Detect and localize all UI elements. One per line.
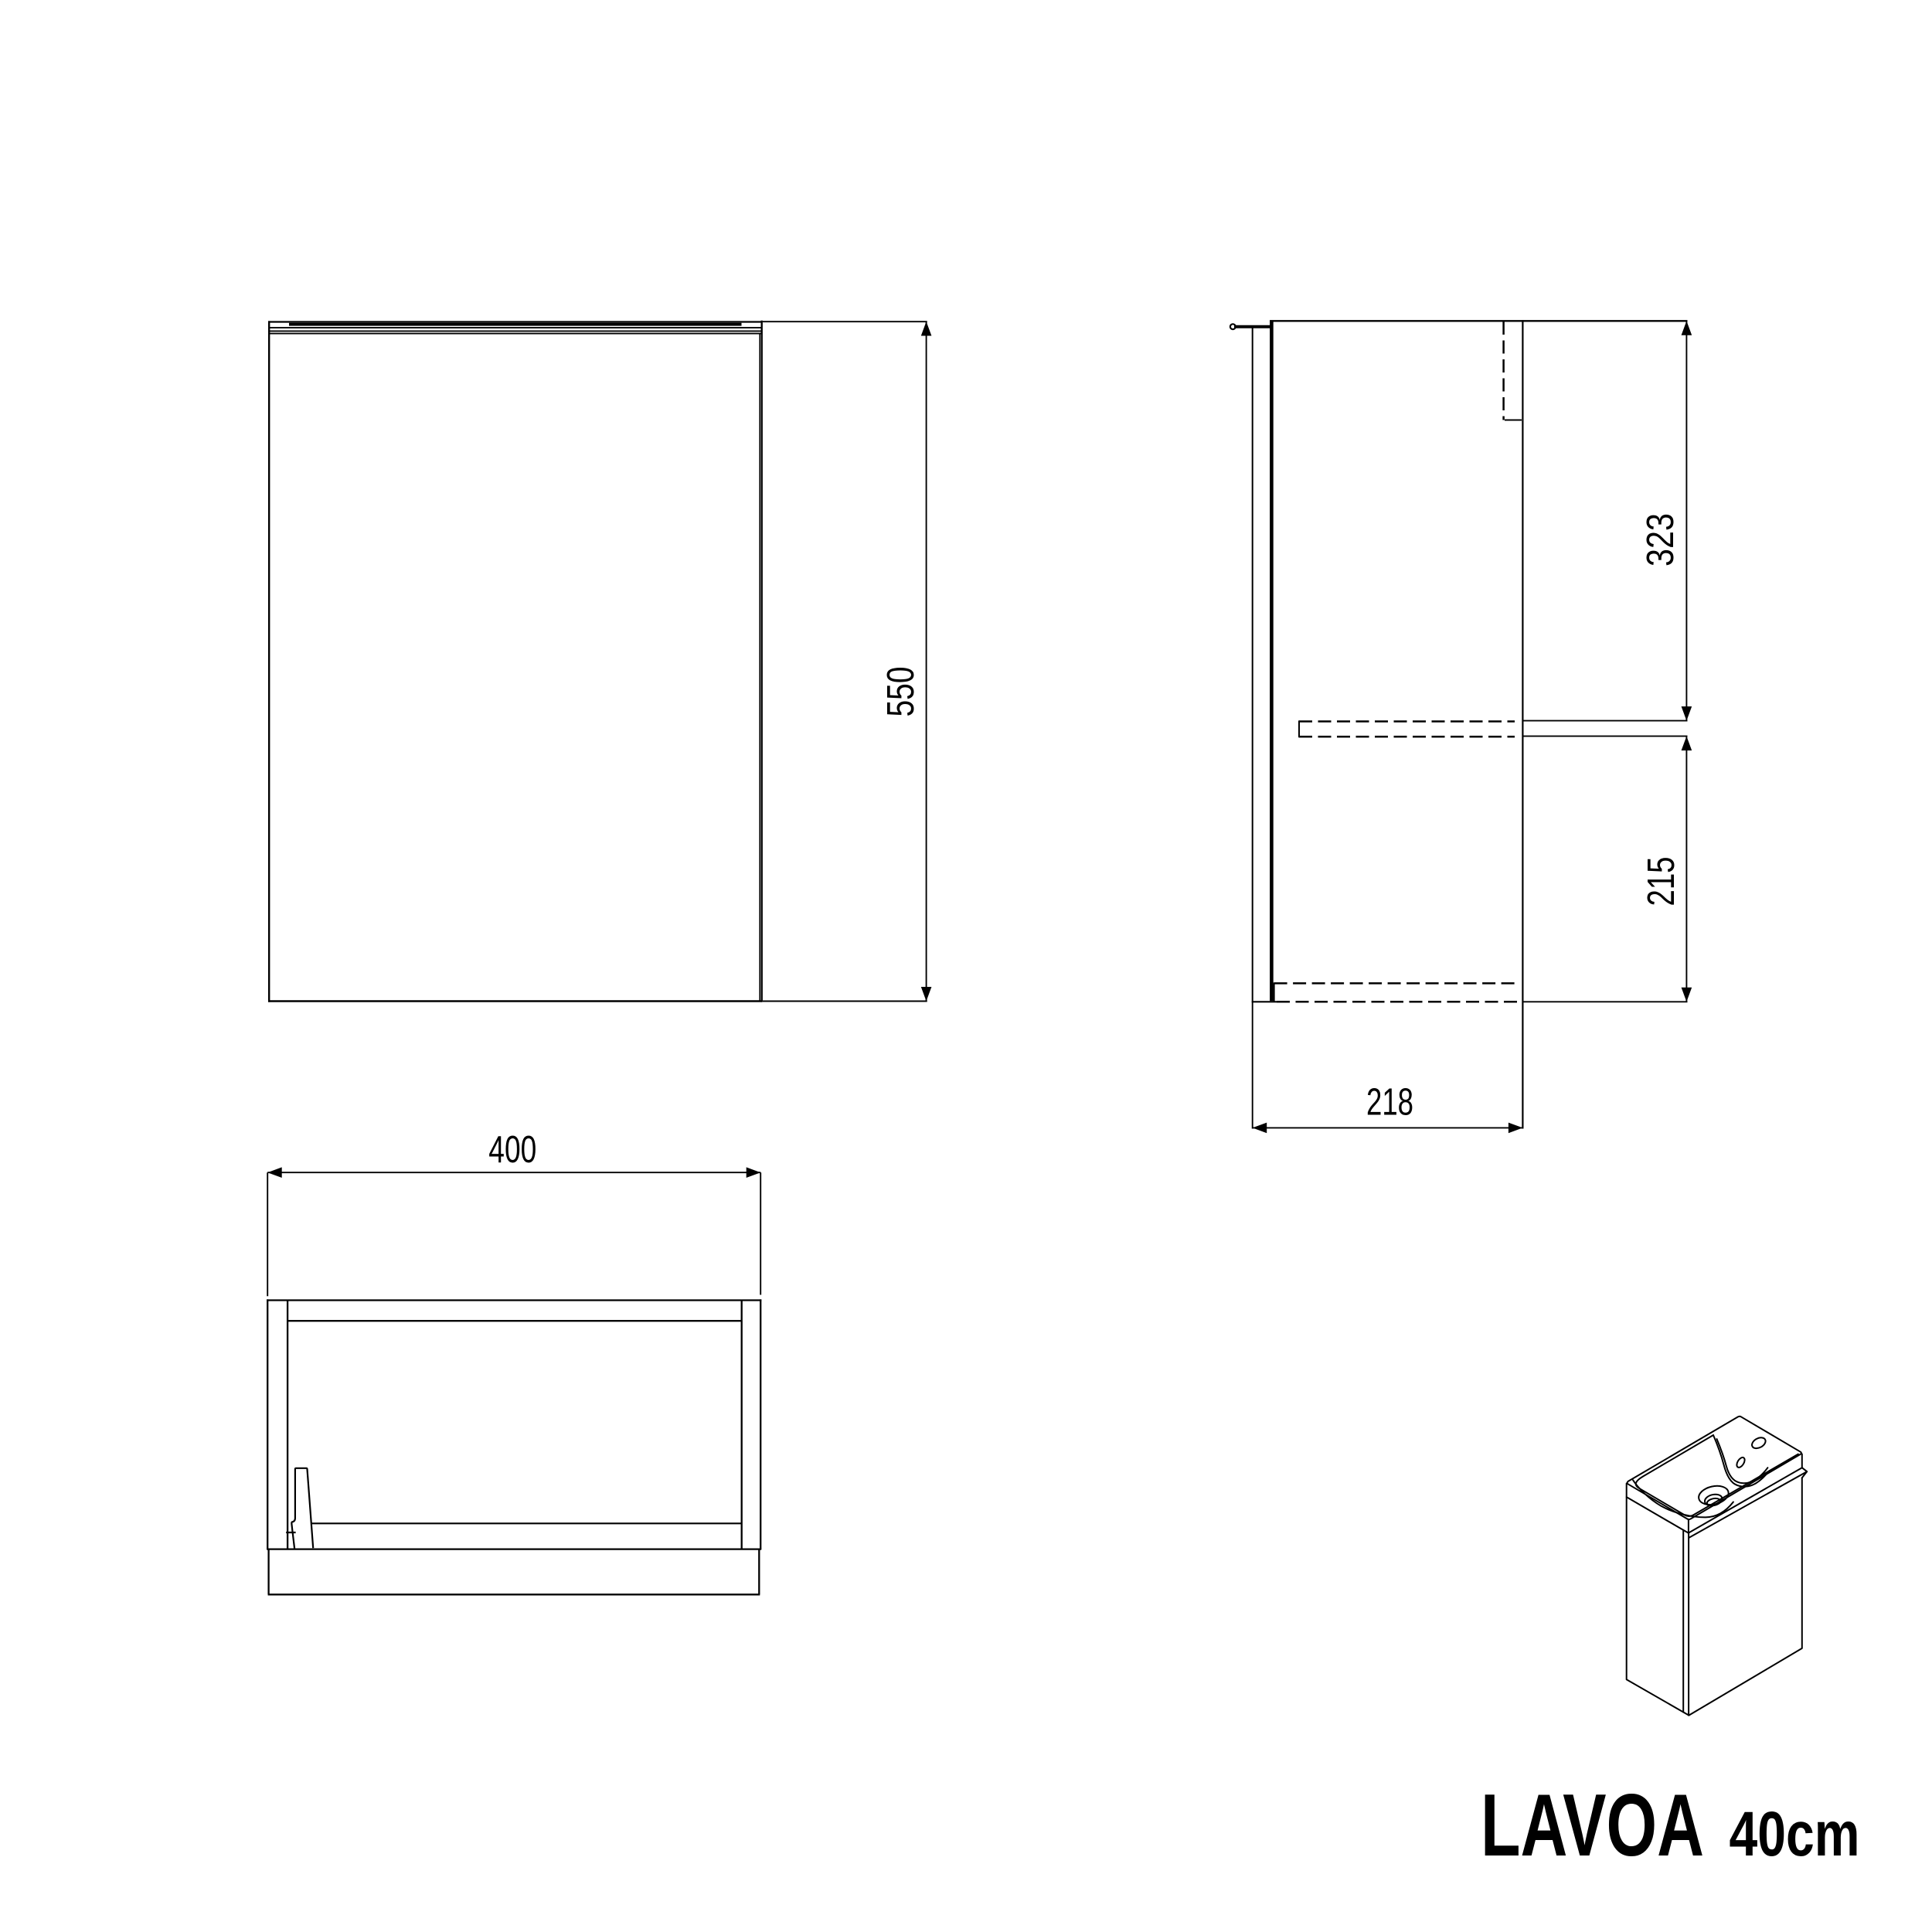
svg-text:218: 218 — [1366, 1082, 1413, 1124]
svg-text:323: 323 — [1640, 513, 1682, 566]
svg-text:400: 400 — [488, 1129, 536, 1171]
svg-text:LAVOA: LAVOA — [1481, 1777, 1704, 1875]
svg-text:550: 550 — [880, 667, 922, 717]
svg-text:215: 215 — [1641, 857, 1682, 906]
svg-text:40cm: 40cm — [1730, 1799, 1860, 1869]
